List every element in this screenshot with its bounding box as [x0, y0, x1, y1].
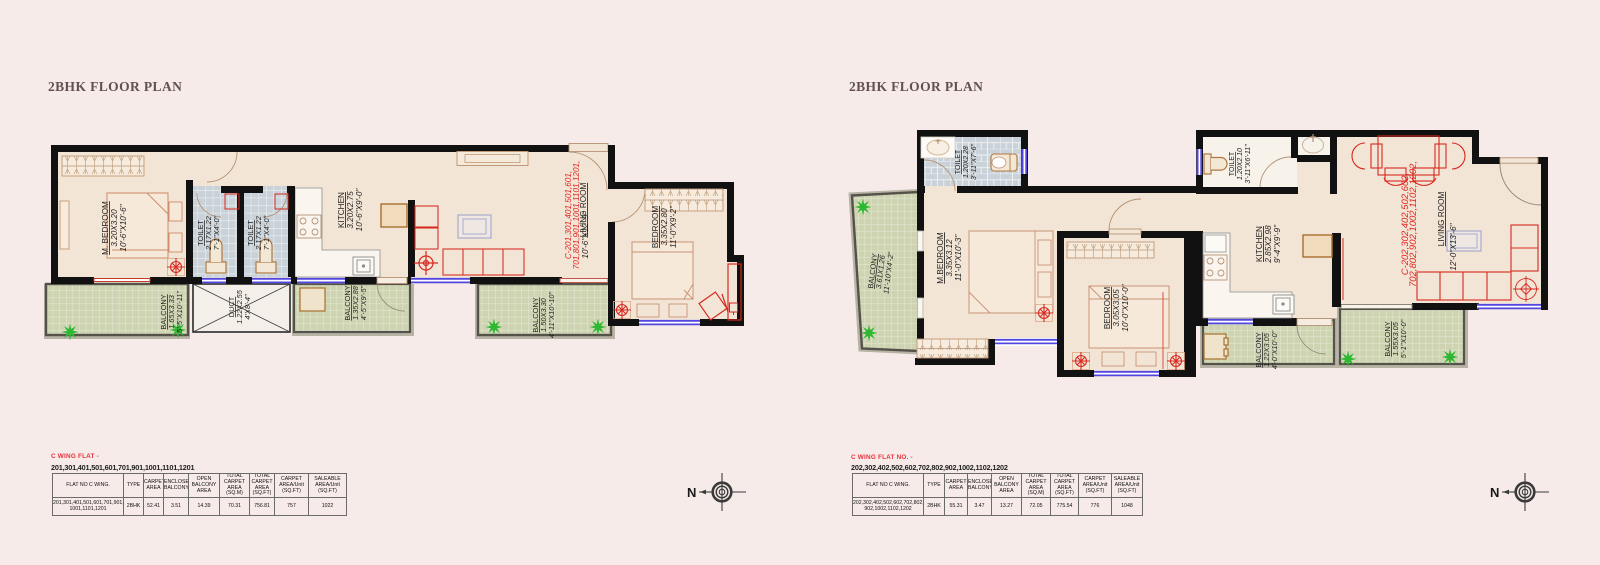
svg-text:LIVING ROOM: LIVING ROOM — [1437, 192, 1446, 247]
svg-text:10'-6"X10'-6": 10'-6"X10'-6" — [119, 203, 128, 251]
svg-text:N: N — [1490, 485, 1499, 500]
svg-text:5'-1"X10'-0": 5'-1"X10'-0" — [1399, 319, 1408, 358]
svg-text:11'-0"X10'-3": 11'-0"X10'-3" — [954, 234, 963, 282]
svg-text:1.20X2.10: 1.20X2.10 — [1237, 148, 1244, 180]
svg-text:4'-11"X10'-10": 4'-11"X10'-10" — [547, 292, 556, 339]
svg-text:KITCHEN: KITCHEN — [337, 192, 346, 228]
svg-text:N: N — [687, 485, 696, 500]
svg-text:KITCHEN: KITCHEN — [1255, 226, 1264, 262]
svg-text:BEDROOM: BEDROOM — [1103, 287, 1112, 329]
svg-text:TOILET: TOILET — [1229, 151, 1236, 176]
svg-text:TOILET: TOILET — [955, 149, 962, 174]
svg-text:3.05X3.05: 3.05X3.05 — [1112, 289, 1121, 327]
svg-text:BEDROOM: BEDROOM — [651, 206, 660, 248]
svg-text:7'-1"X4'-0": 7'-1"X4'-0" — [212, 215, 221, 250]
svg-text:12'-0"X13'-6": 12'-0"X13'-6" — [1449, 222, 1458, 270]
svg-text:10'-6"X9'-0": 10'-6"X9'-0" — [355, 188, 364, 232]
svg-text:9'-4"X9'-9": 9'-4"X9'-9" — [1273, 224, 1282, 263]
svg-text:4'-0"X10'-0": 4'-0"X10'-0" — [1270, 330, 1279, 369]
svg-text:M.BEDROOM: M.BEDROOM — [936, 232, 945, 284]
svg-text:3'-11"X7'-6": 3'-11"X7'-6" — [971, 144, 978, 180]
svg-text:10'-0"X10'-0": 10'-0"X10'-0" — [1121, 283, 1130, 331]
svg-text:2.85X2.98: 2.85X2.98 — [1264, 225, 1273, 264]
svg-text:3'-11"X6'-11": 3'-11"X6'-11" — [1245, 144, 1252, 184]
svg-text:5'-5"X10'-11": 5'-5"X10'-11" — [175, 291, 184, 333]
svg-text:M. BEDROOM: M. BEDROOM — [101, 201, 110, 255]
svg-text:4'X8'-4": 4'X8'-4" — [243, 294, 252, 320]
svg-text:702,802,902,1002,1102,1202,: 702,802,902,1002,1102,1202, — [1408, 161, 1419, 287]
svg-text:3.20X2.75: 3.20X2.75 — [346, 191, 355, 229]
svg-text:11'-0"X9'-2": 11'-0"X9'-2" — [669, 205, 678, 248]
svg-text:10'-6"X12'-9": 10'-6"X12'-9" — [581, 210, 590, 258]
svg-text:7'-1"X4'-0": 7'-1"X4'-0" — [262, 215, 271, 250]
svg-text:3.35X3.12: 3.35X3.12 — [945, 239, 954, 277]
svg-text:3.35X2.80: 3.35X2.80 — [660, 208, 669, 246]
svg-text:1.20X2.28: 1.20X2.28 — [963, 146, 970, 178]
svg-text:3.20X3.20: 3.20X3.20 — [110, 209, 119, 247]
svg-text:4'-5"X9'-5": 4'-5"X9'-5" — [359, 285, 368, 320]
